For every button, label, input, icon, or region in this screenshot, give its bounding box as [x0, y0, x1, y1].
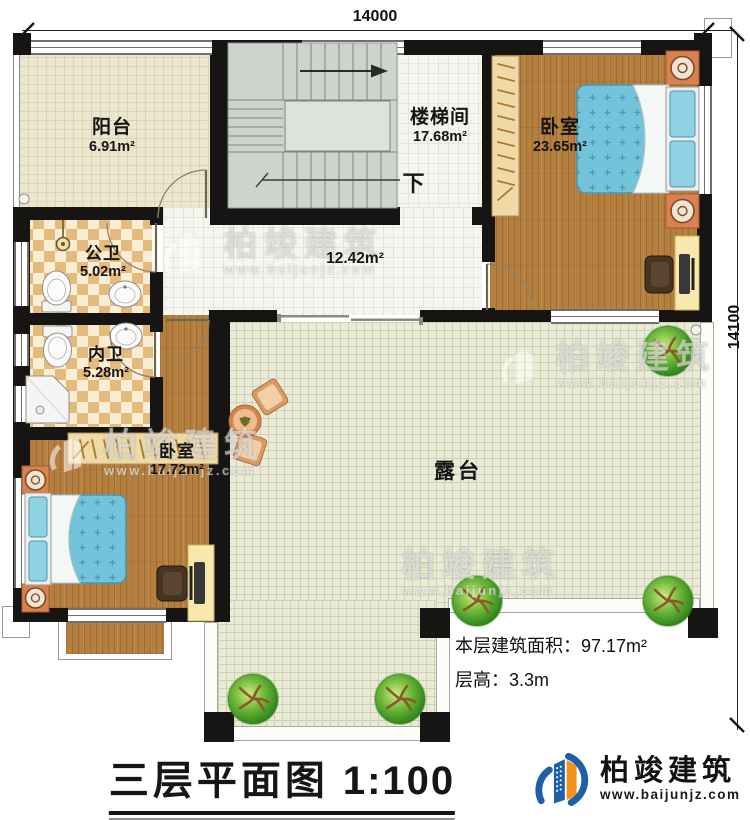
wall	[150, 272, 163, 315]
wall	[230, 310, 277, 322]
wall	[697, 192, 712, 322]
balcony-railing	[13, 48, 20, 208]
room-label-terrace: 露台	[434, 455, 482, 485]
wall	[150, 218, 163, 225]
terrace-column	[688, 608, 718, 638]
stair-down-label: 下	[402, 166, 425, 198]
wall	[209, 310, 230, 622]
brand-logo-icon	[534, 750, 592, 808]
room-label-bedroom-second: 卧室 17.72m²	[150, 437, 204, 478]
window	[697, 86, 712, 194]
window	[14, 478, 29, 588]
window	[302, 40, 404, 55]
brand-logo: 柏竣建筑 www.baijunjz.com	[534, 750, 741, 808]
wall	[13, 427, 163, 440]
floor-area-note: 本层建筑面积：97.17m²	[455, 632, 647, 658]
window	[543, 40, 641, 55]
terrace-parapet-right	[700, 322, 714, 614]
wall	[13, 33, 31, 55]
title-underline-thick	[109, 811, 455, 815]
corridor-floor	[160, 315, 209, 440]
window	[68, 608, 166, 623]
terrace-parapet-bottom	[216, 726, 448, 741]
dimension-line-right	[737, 33, 738, 730]
room-label-hall-area: 12.42m²	[326, 250, 384, 268]
bedroom-main-floor	[490, 50, 698, 312]
brand-name: 柏竣建筑	[600, 756, 741, 786]
brand-website: www.baijunjz.com	[600, 787, 741, 802]
floor-plan-page: { "dimensions": { "top": "14000", "right…	[0, 0, 750, 818]
terrace-column	[204, 712, 234, 742]
room-label-bedroom-main: 卧室 23.65m²	[533, 112, 587, 155]
wall	[420, 310, 482, 322]
wall	[150, 377, 163, 427]
room-label-public-bath: 公卫 5.02m²	[80, 239, 126, 280]
dimension-right: 14100	[726, 294, 744, 360]
wall	[13, 207, 163, 220]
room-label-stairwell: 楼梯间 17.68m²	[410, 102, 470, 145]
wall	[482, 310, 553, 322]
terrace-column	[420, 712, 450, 742]
window	[31, 40, 212, 55]
wall	[210, 40, 228, 225]
window	[14, 242, 29, 306]
wall	[13, 313, 163, 325]
wall	[150, 325, 163, 332]
room-label-balcony: 阳台 6.91m²	[89, 112, 135, 155]
wall	[210, 207, 400, 225]
terrace-floor-lower	[218, 600, 436, 730]
plan-title-block: 三层平面图1:100	[109, 748, 455, 820]
step-floor	[66, 620, 164, 654]
terrace-parapet-bottom-right	[448, 598, 700, 613]
dimension-top: 14000	[353, 8, 398, 26]
wall	[482, 40, 495, 262]
dimension-line-top	[22, 30, 735, 31]
window	[14, 334, 29, 366]
floor-height-note: 层高：3.3m	[455, 666, 549, 692]
wall	[697, 40, 712, 88]
plan-scale: 1:100	[343, 759, 455, 803]
wall	[13, 608, 70, 622]
terrace-column	[420, 608, 450, 638]
room-label-private-bath: 内卫 5.28m²	[83, 340, 129, 381]
window	[14, 386, 29, 422]
window	[551, 309, 659, 324]
plan-title: 三层平面图	[109, 759, 329, 803]
